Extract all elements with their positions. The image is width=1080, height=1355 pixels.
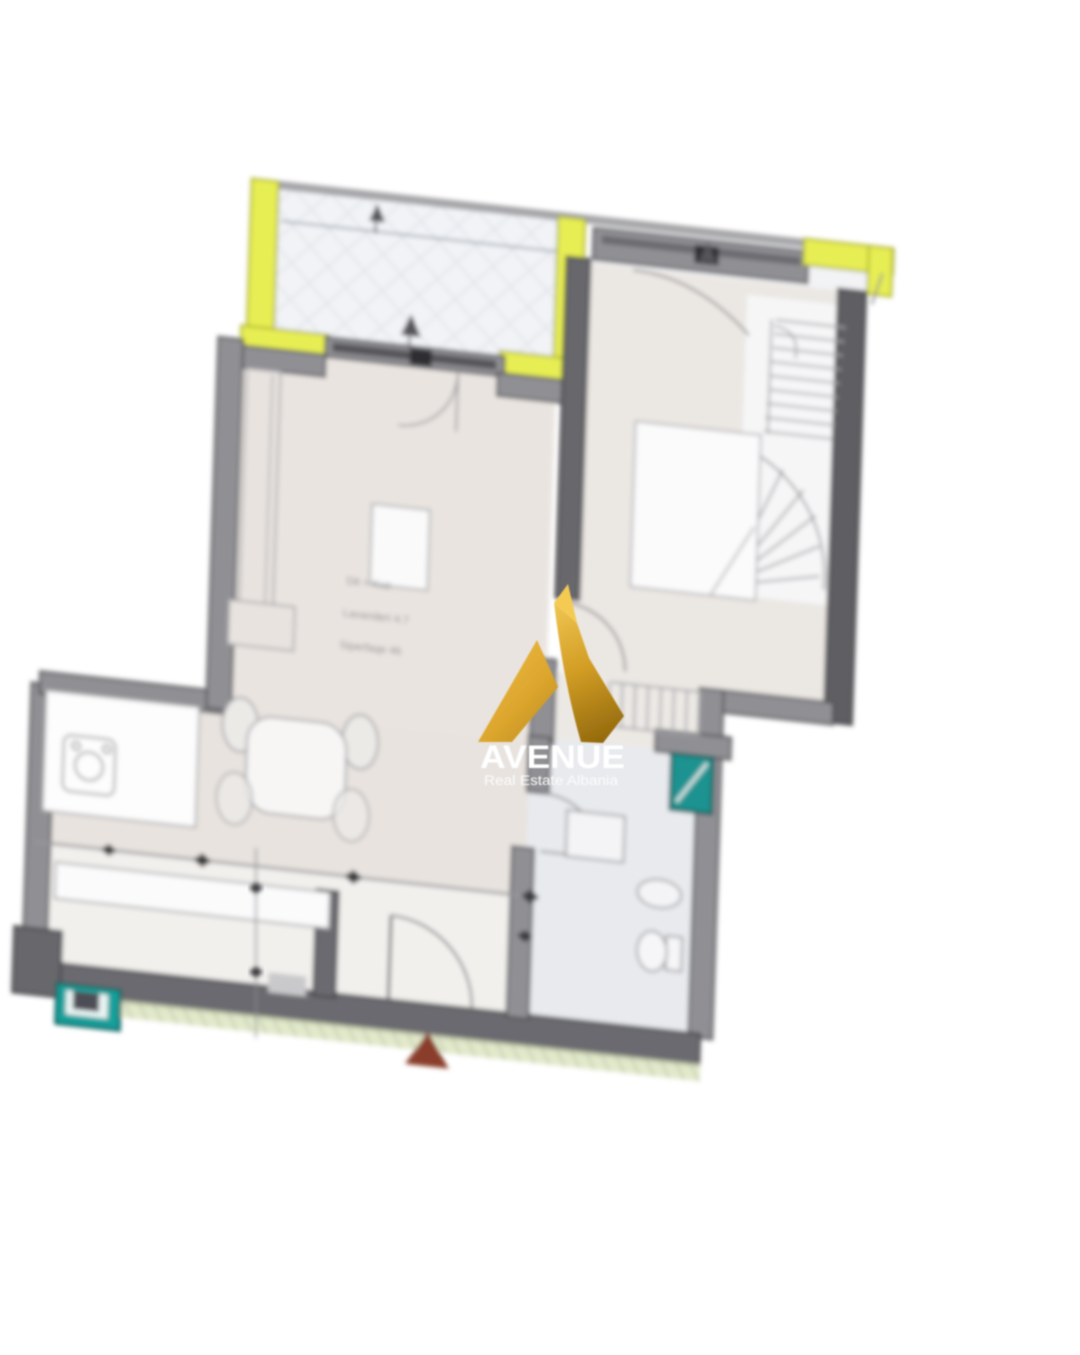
svg-text:Real Estate Albania: Real Estate Albania — [484, 773, 619, 788]
svg-text:AVENUE: AVENUE — [480, 739, 625, 775]
